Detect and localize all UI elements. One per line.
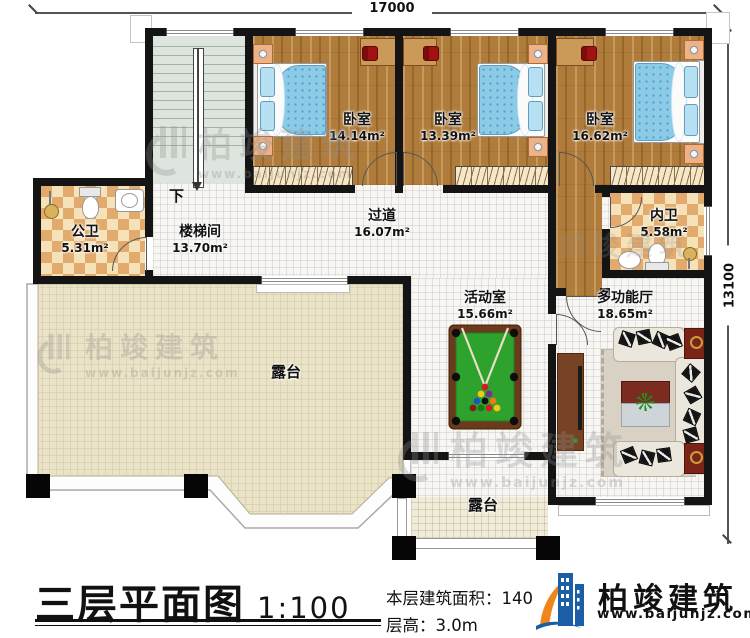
nightstand [528,137,548,157]
side-table-medallion [690,336,703,349]
window [605,28,674,36]
sofa-pillow [656,447,672,463]
wardrobe [455,166,550,187]
room-label-activity: 活动室 15.66m² [447,290,523,321]
wardrobe [610,166,706,187]
column [392,536,416,560]
pillow [260,101,275,131]
shower-hose [49,191,51,205]
side-table-medallion [690,451,703,464]
nightstand [684,144,704,164]
window-sill [558,505,710,516]
room-label-stair-room: 楼梯间 13.70m² [158,224,242,255]
wall [595,185,704,193]
floor-height-line: 层高：3.0m [386,612,478,636]
wall [602,229,610,278]
terrace-parapet [398,538,548,549]
room-label-public-bath: 公卫 5.31m² [47,224,123,255]
wall [704,28,712,505]
wall [549,288,566,296]
column [184,474,208,498]
window [595,497,685,505]
bedroom3-hallway-floor [556,185,602,296]
shower-head-icon [44,204,59,219]
wall [245,36,253,193]
wall [548,344,556,505]
window [261,276,348,284]
wall [610,270,712,278]
nightstand [684,40,704,60]
wall [33,276,261,284]
window [450,28,519,36]
brand-url: www.baijunjz.com [597,606,750,622]
pillow [528,67,543,97]
sink [618,251,641,269]
terrace-parapet [397,498,407,540]
wall [403,284,411,460]
column [536,536,560,560]
chair [423,46,439,61]
wall [548,36,556,314]
window [295,28,364,36]
pool-table [448,324,522,434]
room-label-corridor: 过道 16.07m² [344,208,420,239]
floor-plan: 17000 13100 下 [0,0,750,638]
room-label-bedroom3: 卧室 16.62m² [562,112,638,143]
wall [33,178,153,186]
sink-basin [121,193,138,208]
wall [245,185,355,193]
room-label-bedroom2: 卧室 13.39m² [410,112,486,143]
nightstand [253,44,273,64]
window [448,452,525,460]
shower-head-icon [683,247,697,261]
wardrobe [253,166,353,187]
stair-rail [193,48,204,188]
floor-area-line: 本层建筑面积：140 [386,585,533,609]
pillow [684,104,698,136]
room-label-terrace-small: 露台 [446,496,520,514]
nightstand [253,136,273,156]
nightstand [528,44,548,64]
window-sill [256,284,350,293]
wall [443,185,556,193]
toilet [82,196,99,219]
title-underline [35,619,381,622]
pillow [528,101,543,131]
cabinet-plant-icon [573,438,578,443]
shower-hose [688,258,690,269]
window [166,28,234,36]
pillow [260,67,275,97]
wall [523,452,556,460]
column [26,474,50,498]
window [704,206,712,256]
stair-down-arrow-icon [192,182,202,191]
column [392,474,416,498]
chair [581,46,597,61]
wall [33,178,41,284]
wall [403,452,448,460]
chair [362,46,378,61]
plant-icon [636,393,654,411]
brand-logo-icon [533,568,593,638]
wall [145,28,153,237]
room-label-inner-bath: 内卫 5.58m² [626,208,702,239]
room-label-bedroom1: 卧室 14.14m² [319,112,395,143]
sofa-pillow [636,329,653,346]
stair-down-label: 下 [169,185,184,206]
pillow [684,66,698,98]
tv-icon [578,366,582,430]
room-label-multi-hall: 多功能厅 18.65m² [580,290,670,321]
wall [346,276,411,284]
room-label-terrace-main: 露台 [249,363,323,381]
title-underline [35,625,381,626]
wall [602,185,610,197]
